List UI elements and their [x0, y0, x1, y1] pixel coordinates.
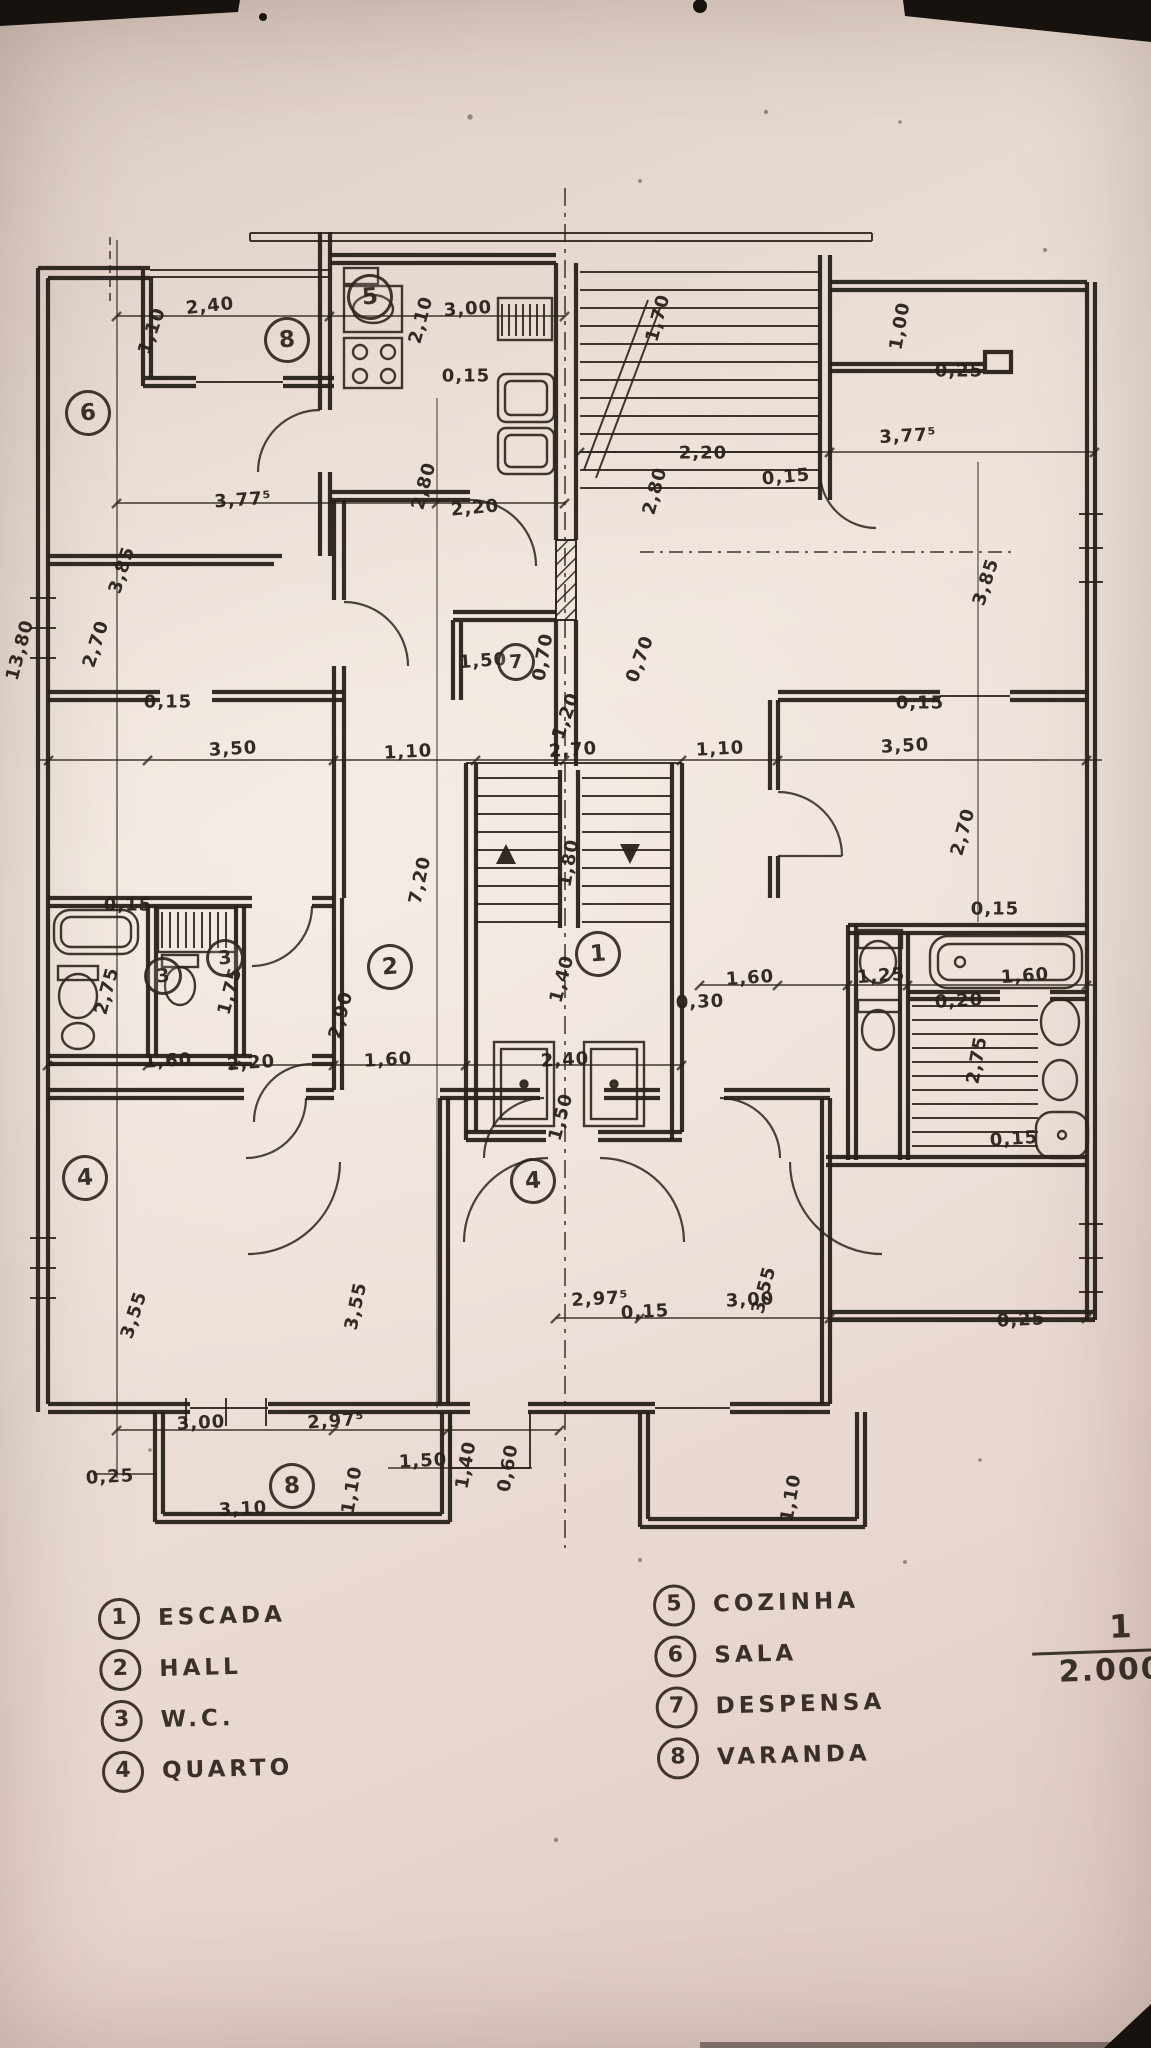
- dimension-label: 3,55: [341, 1280, 372, 1332]
- scale-fraction: 1 2.000: [1031, 1605, 1151, 1690]
- legend-number-circle: 4: [101, 1750, 144, 1793]
- dimension-label: 2,20: [679, 443, 727, 464]
- legend-number-circle: 7: [655, 1686, 698, 1729]
- dimension-label: 2,75: [962, 1034, 991, 1085]
- dimension-label: 1,10: [695, 737, 744, 761]
- dimension-label: 0,25: [85, 1465, 134, 1489]
- dimension-label: 2,97⁵: [307, 1409, 366, 1434]
- dimension-label: 1,40: [546, 953, 579, 1005]
- dimension-label: 0,15: [896, 693, 944, 714]
- dimension-label: 1,10: [776, 1472, 805, 1523]
- dimension-label: 1,50: [545, 1091, 578, 1143]
- legend-item: 3W.C.: [100, 1695, 292, 1742]
- legend-number-circle: 1: [97, 1597, 140, 1640]
- dimension-label: 1,60: [725, 966, 775, 990]
- dimension-label: 0,60: [493, 1442, 522, 1493]
- dimension-label: 3,85: [105, 544, 140, 597]
- dimension-label: 3,77⁵: [214, 488, 273, 513]
- legend-number-circle: 5: [652, 1584, 695, 1627]
- room-number-marker: 8: [267, 1461, 316, 1510]
- dimension-label: 2,10: [405, 294, 438, 346]
- dimension-label: 1,50: [398, 1449, 447, 1473]
- dimension-label: 2,90: [325, 989, 358, 1041]
- room-number-marker: 3: [143, 956, 184, 997]
- room-number-marker: 1: [573, 929, 622, 978]
- room-number-marker: 5: [345, 272, 394, 321]
- dimension-label: 3,00: [725, 1288, 774, 1312]
- dimension-label: 0,15: [442, 366, 490, 387]
- dimension-label: 13,80: [2, 617, 38, 682]
- dimension-label: 7,20: [405, 854, 436, 906]
- dimension-label: 1,80: [554, 837, 583, 888]
- dimension-label: 1,10: [337, 1464, 366, 1515]
- dimension-label: 1,10: [134, 305, 170, 358]
- dimension-label: 2,20: [450, 495, 500, 520]
- dimension-label: 3,10: [218, 1497, 267, 1521]
- room-number-marker: 4: [508, 1156, 557, 1205]
- dimension-label: 0,15: [144, 692, 192, 713]
- dimension-label: 2,70: [79, 618, 114, 671]
- dimension-label: 2,70: [548, 738, 598, 762]
- dimension-label: 1,60: [363, 1048, 412, 1072]
- legend-number-circle: 2: [99, 1648, 142, 1691]
- legend-item: 7DESPENSA: [655, 1681, 886, 1729]
- legend-label: COZINHA: [713, 1588, 860, 1618]
- dimension-label: 1,60: [1000, 964, 1050, 988]
- scale-denominator: 2.000: [1032, 1650, 1151, 1690]
- dimension-label: 0,25: [996, 1308, 1045, 1332]
- room-number-marker: 2: [365, 942, 414, 991]
- dimension-label: 0,15: [104, 895, 152, 916]
- legend-item: 2HALL: [99, 1645, 291, 1692]
- dimension-label: 1,10: [383, 740, 432, 764]
- dimension-label: 3,50: [880, 734, 929, 758]
- dimension-label: 2,70: [947, 806, 980, 858]
- dimension-label: 3,77⁵: [879, 424, 937, 448]
- dimension-label: 3,85: [969, 556, 1004, 609]
- dimension-label: 0,15: [971, 899, 1019, 920]
- dimension-label: 1,60: [143, 1049, 192, 1073]
- legend-number-circle: 3: [100, 1699, 143, 1742]
- legend-label: ESCADA: [158, 1602, 286, 1631]
- dimension-label: 3,55: [117, 1289, 152, 1342]
- legend-label: DESPENSA: [715, 1689, 885, 1719]
- legend-label: VARANDA: [717, 1740, 871, 1770]
- legend-left-column: 1ESCADA2HALL3W.C.4QUARTO: [97, 1594, 293, 1794]
- legend-number-circle: 8: [656, 1737, 699, 1780]
- legend-label: W.C.: [160, 1705, 235, 1733]
- legend-item: 1ESCADA: [97, 1594, 289, 1641]
- dimension-label: 2,40: [540, 1048, 589, 1072]
- dimension-label: 2,40: [185, 293, 235, 319]
- dimension-label: 2,75: [91, 965, 124, 1017]
- legend-item: 6SALA: [654, 1630, 885, 1678]
- legend-label: HALL: [159, 1654, 242, 1682]
- dimension-label: 0,15: [761, 464, 811, 489]
- dimension-label: 2,80: [408, 460, 441, 512]
- dimension-label: 3,00: [176, 1411, 225, 1435]
- dimension-label: 0,70: [622, 633, 658, 686]
- legend-label: SALA: [714, 1640, 797, 1668]
- legend-number-circle: 6: [654, 1635, 697, 1678]
- photo-of-floor-plan: 2,401,103,002,100,151,701,000,252,200,15…: [0, 0, 1151, 2048]
- legend-label: QUARTO: [162, 1754, 294, 1783]
- dimension-label: 1,25: [856, 964, 906, 988]
- dimension-label: 0,25: [935, 361, 983, 382]
- dimension-label: 1,00: [885, 300, 914, 351]
- dimension-label: 2,80: [639, 465, 672, 517]
- legend-item: 4QUARTO: [101, 1746, 293, 1793]
- dimension-label: 0,20: [934, 989, 983, 1013]
- room-number-marker: 4: [60, 1153, 109, 1202]
- dimension-label: 0,30: [675, 991, 724, 1014]
- legend-item: 8VARANDA: [656, 1732, 887, 1780]
- dimension-label: 3,00: [443, 297, 493, 321]
- legend-item: 5COZINHA: [652, 1579, 883, 1627]
- room-number-marker: 6: [63, 388, 112, 437]
- dimension-label: 1,70: [642, 292, 675, 344]
- dimension-label: 3,50: [208, 737, 257, 761]
- dimension-label: 1,20: [548, 690, 584, 743]
- dimension-label: 1,40: [451, 1439, 480, 1490]
- dimension-label: 0,15: [989, 1127, 1039, 1151]
- dimension-label: 0,15: [620, 1300, 669, 1324]
- legend-right-column: 5COZINHA6SALA7DESPENSA8VARANDA: [652, 1579, 887, 1780]
- room-number-marker: 8: [262, 315, 311, 364]
- dimension-label: 2,20: [226, 1051, 276, 1075]
- scale-numerator: 1: [1031, 1605, 1151, 1648]
